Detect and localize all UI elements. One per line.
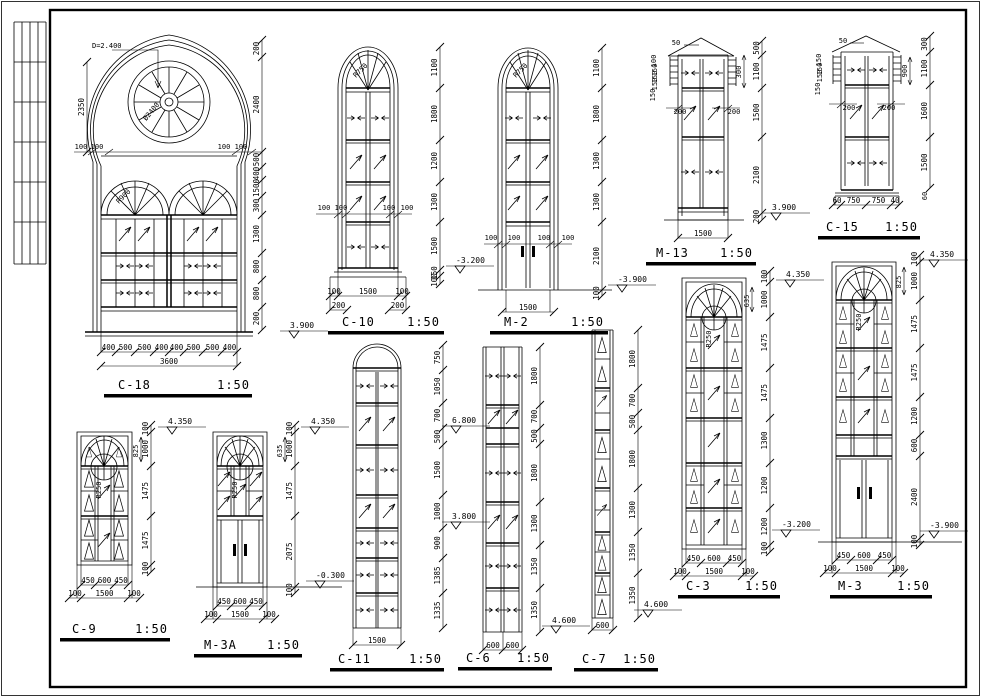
- door-handle: [233, 544, 236, 556]
- dim-label: 500: [628, 414, 637, 428]
- dim-label: 700: [433, 408, 442, 422]
- mullion-grid: [678, 59, 728, 220]
- jamb-dim: 100: [235, 143, 248, 151]
- arch-label: R750: [352, 62, 370, 80]
- dim-label: 1300: [252, 224, 261, 243]
- dim-label: 400: [170, 343, 184, 352]
- level-value: 4.350: [786, 270, 810, 279]
- level-value: 4.350: [311, 417, 335, 426]
- dim-chain-right: 100100014751475100: [141, 421, 155, 576]
- dim-label: 1300: [592, 151, 601, 170]
- dim-label: 1300: [760, 431, 769, 450]
- dim-label: 450: [114, 576, 128, 585]
- dim-chain-total: 3600: [97, 357, 241, 370]
- dim-chain-bottom: 6075075040: [829, 196, 903, 209]
- dim-label: 100: [127, 589, 141, 598]
- dim-label: 1500: [231, 610, 250, 619]
- dim-label: 1800: [592, 104, 601, 123]
- dim-label: 100: [673, 567, 687, 576]
- detail-title: M-3: [838, 579, 863, 593]
- detail-scale: 1:50: [517, 651, 550, 665]
- window-outline: [592, 330, 613, 618]
- detail-title: M-3A: [204, 638, 237, 652]
- detail-title: C-6: [466, 651, 491, 665]
- jamb-dim: 100: [383, 204, 396, 212]
- detail-scale: 1:50: [897, 579, 930, 593]
- dim-label: 100: [430, 273, 439, 287]
- dim-label: 3600: [160, 357, 179, 366]
- dim-label: 100: [760, 541, 769, 555]
- rose-label: Ø2400: [142, 101, 162, 122]
- dim-label: 100: [910, 251, 919, 265]
- pane-symbols: [485, 374, 521, 612]
- dim-chain-bottom: 1500: [674, 229, 732, 242]
- title-bar: [818, 236, 920, 240]
- door-handle: [521, 246, 524, 257]
- dim-label: 1300: [430, 192, 439, 211]
- dim-label: 200: [252, 311, 261, 325]
- dim-chain-right: 10010001475147512006002400100: [910, 251, 924, 549]
- side-dim: 200: [883, 104, 896, 112]
- dim-label: 1200: [430, 151, 439, 170]
- mullion-grid: [845, 56, 889, 186]
- dim-chain-b1: 450600450: [213, 597, 267, 610]
- dim-label: 2100: [752, 165, 761, 184]
- dim-label: 600: [910, 438, 919, 452]
- svg-text:825: 825: [895, 276, 903, 289]
- detail-m3: R250 825 10010001475147512006002400100 4…: [818, 250, 968, 599]
- dim-label: 450: [728, 554, 742, 563]
- dim-label: 600: [233, 597, 247, 606]
- level-marker: 4.600: [542, 616, 590, 633]
- dim-chain-b2: 1001500100: [65, 589, 144, 602]
- dim-label: 500: [138, 343, 152, 352]
- detail-c10: R750 100 100 100 100 1100180012001300150…: [316, 43, 494, 335]
- dim-label: 1000: [910, 271, 919, 290]
- ridge-dim: 50: [839, 37, 847, 45]
- jamb-dim: 100: [318, 204, 331, 212]
- dim-label: 100: [891, 564, 905, 573]
- window-outline: [483, 347, 522, 632]
- circle-label: R250: [705, 331, 713, 348]
- jamb-dim: 100: [508, 234, 521, 242]
- detail-title: C-7: [582, 652, 607, 666]
- dim-label: 100: [910, 534, 919, 548]
- level-marker: 4.350: [920, 250, 968, 267]
- dim-label: 1500: [252, 178, 261, 197]
- detail-scale: 1:50: [623, 652, 656, 666]
- level-value: 3.800: [452, 512, 476, 521]
- extension-lines: [484, 241, 572, 312]
- dim-label: 1475: [910, 363, 919, 381]
- dim-label: 100: [760, 269, 769, 283]
- dim-label: 600: [506, 641, 520, 650]
- level-value: 3.900: [290, 321, 314, 330]
- level-value: 4.600: [552, 616, 576, 625]
- level-marker: -3.200: [446, 256, 494, 273]
- dim-label: 100: [327, 287, 341, 296]
- detail-scale: 1:50: [267, 638, 300, 652]
- level-value: 3.900: [772, 203, 796, 212]
- detail-title: M-2: [504, 315, 529, 329]
- dim-label: 100: [68, 589, 82, 598]
- pane-symbols: [847, 68, 887, 165]
- door-handle: [244, 544, 247, 556]
- dim-label: 1800: [530, 366, 539, 385]
- detail-title: C-3: [686, 579, 711, 593]
- dim-label: 1000: [285, 439, 294, 458]
- detail-title: C-11: [338, 652, 371, 666]
- dim-label: 100: [592, 286, 601, 300]
- circle-label: R250: [855, 314, 863, 331]
- dim-label: 100: [141, 561, 150, 575]
- window-outline: [77, 432, 132, 565]
- title-bar: [490, 331, 608, 335]
- dim-label: 300: [252, 198, 261, 212]
- dim-chain-bottom: 1001500100: [326, 287, 410, 300]
- detail-scale: 1:50: [217, 378, 250, 392]
- dim-chain-right: 11001800130013002100100: [592, 44, 606, 300]
- detail-c18: D=2.400 Ø2400 R900 100 100 100 100 2350 …: [74, 35, 328, 398]
- dim-label: 1800: [530, 463, 539, 482]
- dim-chain-bottom: 400500500400400500500400: [97, 343, 241, 356]
- dim-label: 500: [252, 152, 261, 166]
- door-outline: [196, 432, 342, 587]
- dim-label: 300: [920, 37, 929, 51]
- dim-label: 1500: [705, 567, 724, 576]
- dim-label: 1500: [519, 303, 538, 312]
- level-marker: 3.900: [280, 321, 328, 338]
- cad-drawing-sheet: D=2.400 Ø2400 R900 100 100 100 100 2350 …: [0, 0, 981, 697]
- title-bar: [458, 667, 552, 671]
- side-stack-dim: 150: [649, 89, 657, 102]
- jamb-dim: 100: [218, 143, 231, 151]
- dim-label: 100: [395, 287, 409, 296]
- title-bar: [60, 638, 170, 642]
- extension-lines: [88, 149, 256, 366]
- dim-label: 750: [433, 350, 442, 364]
- dim-label: 400: [223, 343, 237, 352]
- level-marker: 4.350: [158, 417, 206, 434]
- dim-label: 1000: [141, 439, 150, 458]
- dim-chain-right: 75010507005001500100090013851335: [433, 341, 447, 632]
- detail-title: C-9: [72, 622, 97, 636]
- level-marker: 4.350: [776, 270, 824, 287]
- detail-scale: 1:50: [720, 246, 753, 260]
- level-value: 6.800: [452, 416, 476, 425]
- dim-label: 1200: [910, 406, 919, 425]
- dim-label: 600: [98, 576, 112, 585]
- mullion-grid: [486, 347, 519, 632]
- svg-text:300: 300: [735, 66, 743, 79]
- detail-m13: 50 100 150 150 150 150 200 200 300 50011…: [646, 37, 810, 266]
- level-marker: 3.900: [762, 203, 810, 220]
- jamb-dim: 100: [485, 234, 498, 242]
- window-outline: [353, 344, 401, 628]
- ridge-dim: 50: [672, 39, 680, 47]
- level-value: -3.900: [618, 275, 647, 284]
- dim-label: 1350: [628, 543, 637, 562]
- dim-label: 600: [596, 621, 610, 630]
- dim-label: 500: [206, 343, 220, 352]
- mullion-grid: [346, 88, 390, 268]
- dim-label: 450: [249, 597, 263, 606]
- dim-chain-b2: 1001500100: [201, 610, 279, 623]
- side-stack-dim: 150: [814, 83, 822, 96]
- door-handle: [869, 487, 872, 499]
- dim-chain-right: 200240050040015003001300800800200: [252, 36, 266, 334]
- dim-label: 600: [707, 554, 721, 563]
- rose-window: [112, 50, 210, 143]
- level-marker: -3.900: [920, 521, 968, 538]
- detail-scale: 1:50: [409, 652, 442, 666]
- dim-label: 500: [119, 343, 133, 352]
- detail-title: M-13: [656, 246, 689, 260]
- detail-c7: 18007005001800130013501350 600 4.600 C-7…: [574, 326, 682, 672]
- dim-label: 100: [741, 567, 755, 576]
- svg-text:900: 900: [901, 65, 909, 78]
- detail-title: C-10: [342, 315, 375, 329]
- svg-text:635: 635: [276, 445, 284, 458]
- level-value: -3.900: [930, 521, 959, 530]
- dim-label: 100: [285, 583, 294, 597]
- detail-title: C-15: [826, 220, 859, 234]
- dim-label: 1050: [433, 377, 442, 396]
- side-stack-dim: 150: [816, 70, 824, 83]
- dim-label: 1500: [694, 229, 713, 238]
- side-stack-dim: 150: [651, 78, 659, 91]
- jamb-dim: 100: [562, 234, 575, 242]
- dim-chain-b1: 450600450: [832, 551, 896, 564]
- mullion-grid: [217, 466, 263, 583]
- level-value: -3.200: [456, 256, 485, 265]
- dim-chain-right: 100100014752075100: [285, 421, 299, 597]
- detail-c15: 50 150 150 150 150 200 200 900 60 300110…: [814, 32, 934, 240]
- dim-chain-right: 18007005001800130013501350: [530, 343, 544, 636]
- dim-label: 1335: [433, 601, 442, 619]
- level-value: 4.350: [168, 417, 192, 426]
- dim-label: 1100: [920, 59, 929, 78]
- mullion-grid: [595, 359, 610, 595]
- dim-label: 500: [433, 429, 442, 443]
- title-bar: [678, 595, 780, 599]
- inner-dim: 900: [901, 57, 912, 85]
- dim-label: 450: [687, 554, 701, 563]
- sheet-edge-strip: [14, 22, 46, 264]
- dim-label: 500: [752, 41, 761, 55]
- dim-label: 40: [890, 196, 900, 205]
- dim-chain-right: 500110015002100200: [752, 37, 766, 224]
- title-bar: [104, 394, 252, 398]
- dim-chain-right: 18007005001800130013501350: [628, 326, 642, 622]
- level-value: -0.300: [316, 571, 345, 580]
- dim-label: 2350: [77, 97, 86, 116]
- dim-label: 1800: [628, 449, 637, 468]
- sill-dim: 60: [921, 192, 929, 200]
- detail-m3a: R250 635 100100014752075100 450600450 10…: [194, 417, 354, 658]
- pane-symbols: [116, 227, 221, 295]
- dim-chain-right: 100100014751475130012001200100: [760, 267, 774, 556]
- dim-label: 2100: [592, 246, 601, 265]
- dim-label: 100: [141, 421, 150, 435]
- jamb-dim: 100: [75, 143, 88, 151]
- dim-label: 1100: [592, 58, 601, 77]
- inner-dim: 300: [735, 55, 746, 88]
- dim-label: 1200: [760, 517, 769, 536]
- detail-scale: 1:50: [745, 579, 778, 593]
- pane-symbols: [691, 324, 739, 533]
- dim-label: 1475: [910, 315, 919, 333]
- title-bar: [646, 262, 756, 266]
- dim-label: 400: [155, 343, 169, 352]
- dim-label: 2400: [910, 487, 919, 506]
- detail-c6: 18007005001800130013501350 600600 4.600 …: [458, 343, 590, 671]
- dim-label: 700: [628, 393, 637, 407]
- dim-label: 1475: [141, 531, 150, 549]
- jamb-dim: 100: [401, 204, 414, 212]
- dim-label: 1475: [760, 384, 769, 402]
- title-bar: [574, 668, 658, 672]
- pane-symbols: [505, 116, 551, 210]
- dim-label: 500: [187, 343, 201, 352]
- dim-label: 1475: [760, 333, 769, 351]
- dim-chain-right: 11001800120013001500150100: [430, 43, 444, 288]
- dim-label: 1600: [920, 101, 929, 120]
- dim-label: 600: [857, 551, 871, 560]
- mullion-grid: [506, 88, 550, 288]
- dim-label: 1500: [430, 236, 439, 255]
- dim-label: 60: [832, 196, 842, 205]
- dim-label: 600: [486, 641, 500, 650]
- detail-title: C-18: [118, 378, 151, 392]
- dim-label: 1100: [430, 58, 439, 77]
- dim-label: 1500: [855, 564, 874, 573]
- level-marker: -3.200: [772, 520, 820, 537]
- dim-label: 100: [823, 564, 837, 573]
- title-bar: [194, 654, 302, 658]
- inner-dim: 825: [895, 267, 906, 295]
- dim-label: 700: [530, 409, 539, 423]
- dim-label: 1300: [628, 500, 637, 519]
- dim-label: 1500: [95, 589, 114, 598]
- level-marker: 4.350: [301, 417, 349, 434]
- side-dim: 200: [843, 104, 856, 112]
- dim-label: 200: [752, 209, 761, 223]
- dim-label: 1800: [628, 349, 637, 368]
- window-outline: [833, 52, 901, 196]
- inner-dim: 635: [743, 287, 754, 312]
- dim-chain-b1: 450600450: [682, 554, 746, 567]
- dim-label: 750: [872, 196, 886, 205]
- dim-label: 1800: [430, 104, 439, 123]
- dim-chain-b1: 450600450: [77, 576, 132, 589]
- dim-label: 1475: [285, 482, 294, 500]
- detail-scale: 1:50: [135, 622, 168, 636]
- dim-chain-right: 300110016001500: [920, 32, 934, 192]
- dim-chain-b2: 1001500100: [820, 564, 908, 577]
- dim-label: 1500: [368, 636, 387, 645]
- svg-text:825: 825: [132, 445, 140, 458]
- side-dim: 200: [674, 108, 687, 116]
- dim-label: 1100: [752, 62, 761, 81]
- circle-label: R250: [95, 482, 103, 499]
- detail-scale: 1:50: [407, 315, 440, 329]
- dim-chain-left: 2350: [77, 58, 91, 156]
- detail-scale: 1:50: [571, 315, 604, 329]
- dim-label: 200: [332, 301, 346, 310]
- dim-label: 1200: [760, 476, 769, 495]
- dim-label: 1000: [433, 502, 442, 521]
- door-handle: [532, 246, 535, 257]
- dim-chain-bottom: 600: [588, 621, 617, 634]
- detail-c11: 75010507005001500100090013851335 1500 6.…: [330, 341, 490, 672]
- mullion-grid: [686, 317, 742, 545]
- dim-label: 400: [252, 166, 261, 180]
- detail-c9: R250 825 100100014751475100 450600450 10…: [60, 417, 206, 642]
- dim-label: 1350: [530, 600, 539, 619]
- dim-label: 450: [878, 551, 892, 560]
- dim-label: 100: [204, 610, 218, 619]
- level-value: 4.350: [930, 250, 954, 259]
- dim-chain-bottom: 1500: [349, 636, 405, 649]
- dim-label: 450: [217, 597, 231, 606]
- dim-label: 800: [252, 286, 261, 300]
- dim-label: 1385: [433, 566, 442, 584]
- dim-label: 1300: [592, 192, 601, 211]
- circle-label: R250: [231, 482, 239, 499]
- window-outline: [74, 35, 262, 336]
- dim-label: 400: [102, 343, 116, 352]
- jamb-dim: 100: [538, 234, 551, 242]
- svg-text:635: 635: [743, 295, 751, 308]
- dim-label: 1500: [752, 103, 761, 122]
- dim-label: 2075: [285, 542, 294, 560]
- level-marker: -3.900: [608, 275, 656, 292]
- detail-m2: R750 100 100 100 100 1100180013001300210…: [478, 44, 656, 335]
- dim-label: 100: [285, 421, 294, 435]
- dim-label: 1500: [433, 460, 442, 479]
- detail-c3: R250 635 100100014751475130012001200100 …: [670, 267, 824, 599]
- jamb-dim: 100: [91, 143, 104, 151]
- jamb-dim: 100: [335, 204, 348, 212]
- dim-label: 1000: [760, 290, 769, 309]
- dim-label: 1500: [359, 287, 378, 296]
- dim-label: 450: [81, 576, 95, 585]
- mullion-grid: [353, 368, 401, 628]
- dim-label: 1475: [141, 482, 150, 500]
- dim-label: 2400: [252, 95, 261, 114]
- title-bar: [328, 331, 444, 335]
- level-value: 4.600: [644, 600, 668, 609]
- dim-label: 450: [837, 551, 851, 560]
- side-dim: 200: [728, 108, 741, 116]
- diameter-note: D=2.400: [92, 42, 122, 50]
- dim-label: 100: [262, 610, 276, 619]
- title-bar: [330, 668, 444, 672]
- detail-scale: 1:50: [885, 220, 918, 234]
- dim-label: 800: [252, 259, 261, 273]
- dim-label: 200: [391, 301, 405, 310]
- dim-label: 750: [847, 196, 861, 205]
- level-value: -3.200: [782, 520, 811, 529]
- dim-label: 900: [433, 536, 442, 550]
- dim-label: 1500: [920, 153, 929, 172]
- level-marker: -0.300: [306, 571, 354, 588]
- dim-label: 1300: [530, 514, 539, 533]
- pane-symbols: [681, 71, 723, 174]
- dim-label: 500: [530, 429, 539, 443]
- dim-label: 1350: [628, 586, 637, 605]
